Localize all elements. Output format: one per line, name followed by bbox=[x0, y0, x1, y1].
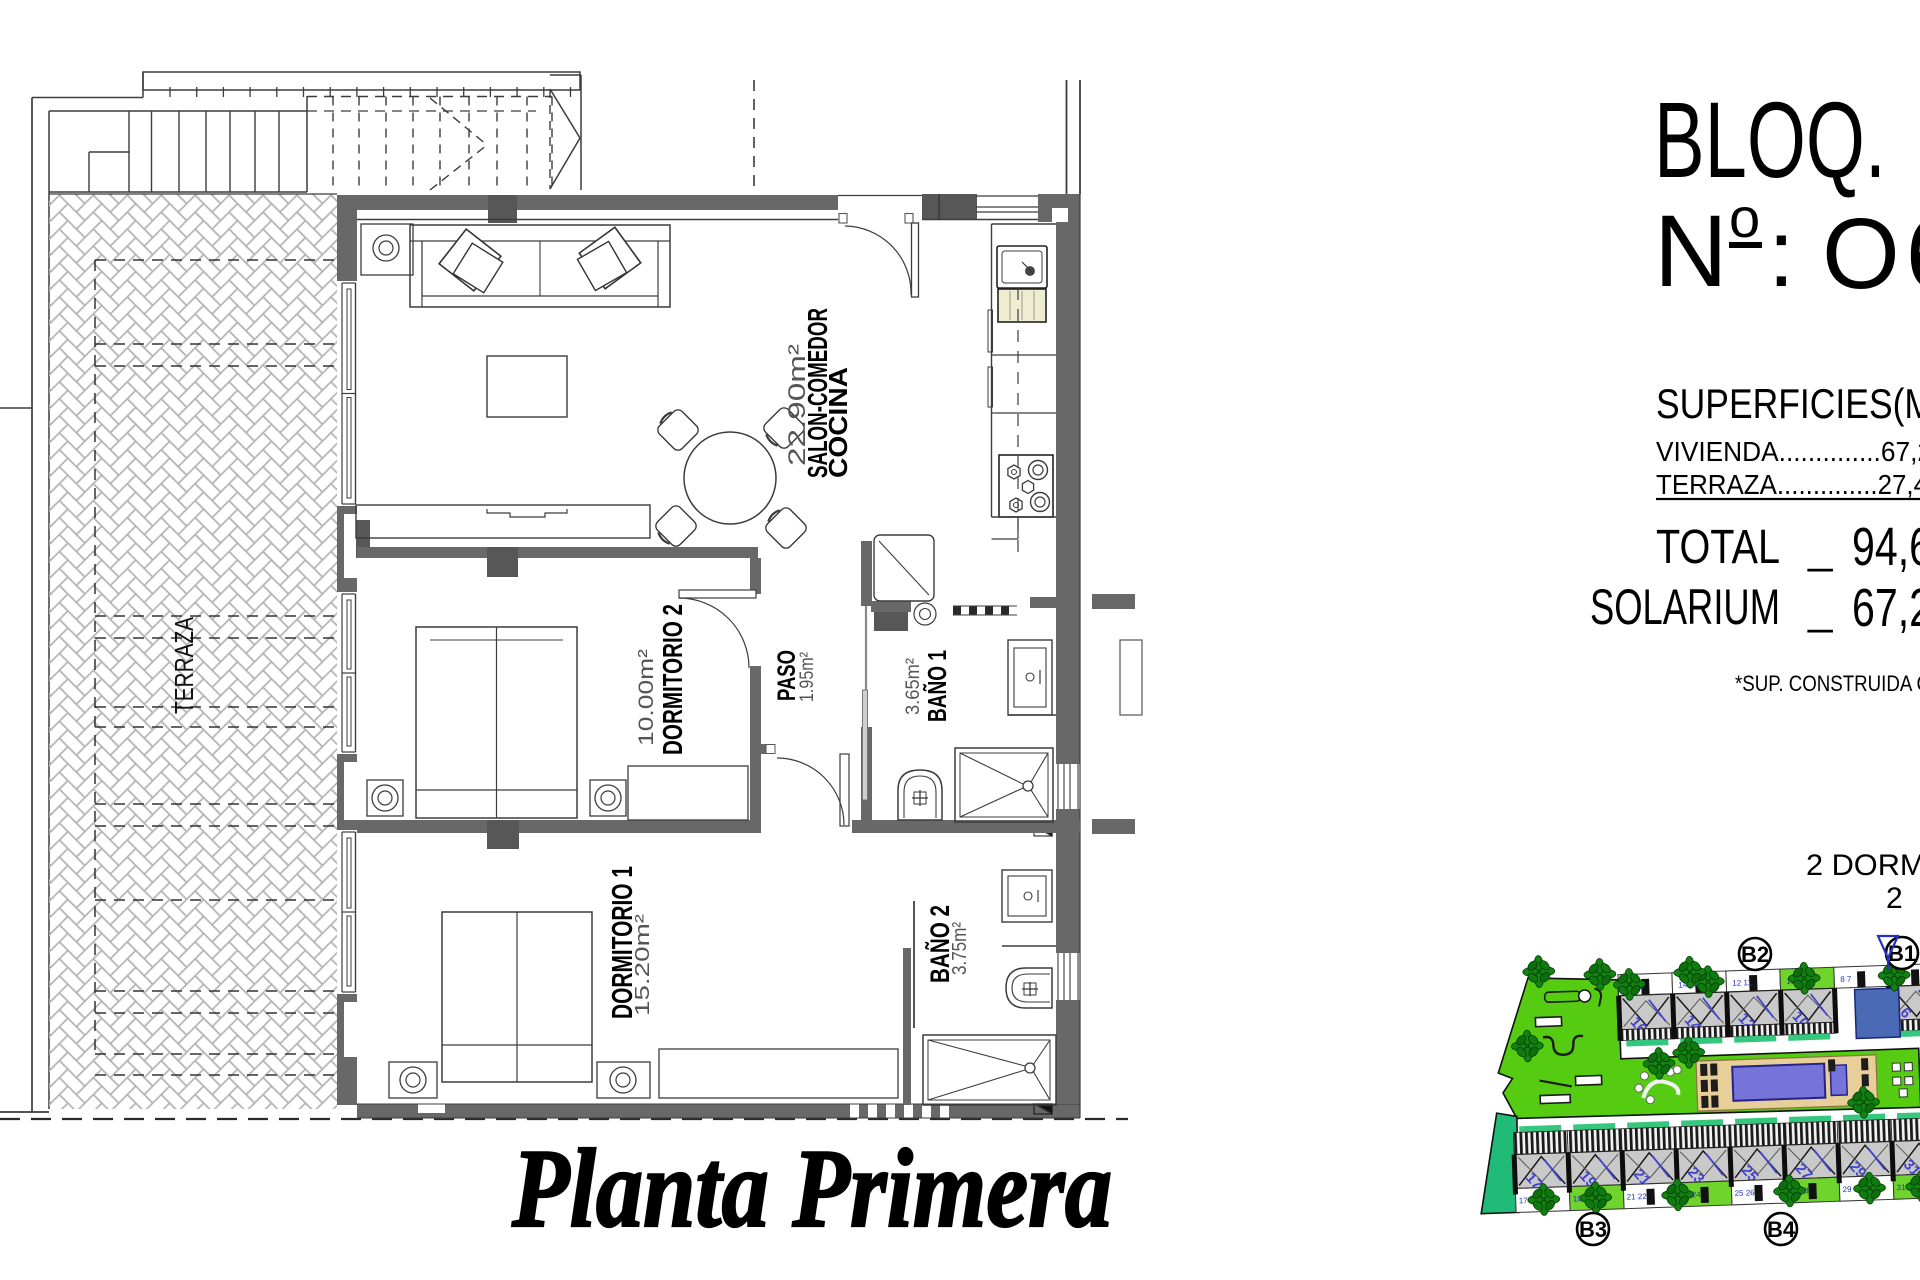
svg-text:94,6: 94,6 bbox=[1852, 517, 1920, 577]
svg-text:B4: B4 bbox=[1767, 1217, 1796, 1242]
svg-text:Planta Primera: Planta Primera bbox=[511, 1127, 1112, 1251]
svg-text::: : bbox=[1768, 200, 1795, 307]
svg-text:1.95m²: 1.95m² bbox=[797, 652, 818, 702]
svg-text:B1: B1 bbox=[1888, 941, 1916, 966]
svg-text:3.65m²: 3.65m² bbox=[903, 658, 924, 715]
svg-text:SUPERFICIES(M: SUPERFICIES(M bbox=[1656, 380, 1920, 427]
svg-text:SOLARIUM: SOLARIUM bbox=[1590, 579, 1780, 635]
svg-text:O6: O6 bbox=[1822, 198, 1920, 310]
svg-text:22.90m²: 22.90m² bbox=[784, 344, 811, 466]
svg-text:3.75m²: 3.75m² bbox=[949, 922, 971, 975]
svg-text:67,2: 67,2 bbox=[1852, 578, 1920, 638]
svg-text:8 7: 8 7 bbox=[1840, 975, 1852, 984]
svg-text:12 11: 12 11 bbox=[1732, 978, 1752, 988]
svg-text:_: _ bbox=[1807, 585, 1833, 634]
svg-text:DORMITORIO 2: DORMITORIO 2 bbox=[657, 604, 688, 755]
svg-text:VIVIENDA..............67,2: VIVIENDA..............67,2 bbox=[1656, 436, 1920, 467]
svg-text:_: _ bbox=[1807, 524, 1833, 573]
svg-text:2: 2 bbox=[1886, 882, 1903, 915]
svg-text:B3: B3 bbox=[1579, 1217, 1607, 1242]
svg-text:*SUP. CONSTRUIDA C: *SUP. CONSTRUIDA C bbox=[1735, 671, 1920, 696]
svg-text:21 22: 21 22 bbox=[1627, 1192, 1648, 1202]
svg-text:N: N bbox=[1654, 194, 1728, 308]
svg-text:COCINA: COCINA bbox=[823, 367, 853, 478]
svg-text:BLOQ.: BLOQ. bbox=[1654, 79, 1886, 200]
svg-text:25 26: 25 26 bbox=[1734, 1188, 1755, 1198]
svg-text:o: o bbox=[1729, 186, 1760, 249]
svg-text:10.00m²: 10.00m² bbox=[635, 649, 658, 746]
svg-text:B2: B2 bbox=[1741, 942, 1769, 967]
svg-text:15.20m²: 15.20m² bbox=[632, 914, 654, 1016]
svg-text:TERRAZA..............27,4: TERRAZA..............27,4 bbox=[1656, 469, 1920, 500]
svg-text:TERRAZA: TERRAZA bbox=[169, 616, 199, 714]
svg-text:TOTAL: TOTAL bbox=[1656, 521, 1780, 574]
svg-text:BAÑO 1: BAÑO 1 bbox=[922, 650, 952, 722]
svg-text:2 DORMI: 2 DORMI bbox=[1806, 849, 1920, 882]
